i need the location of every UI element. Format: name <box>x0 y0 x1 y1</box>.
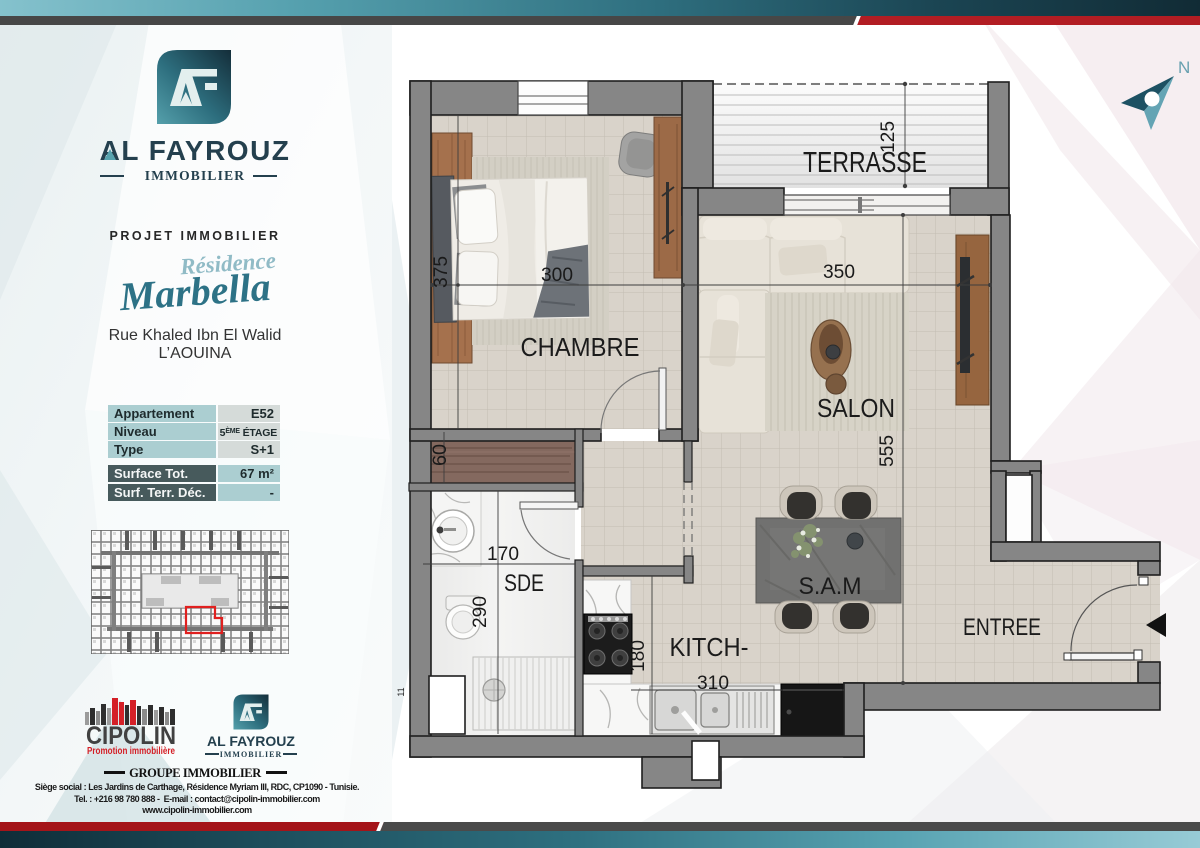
svg-text:N: N <box>1178 58 1190 77</box>
svg-text:S.A.M: S.A.M <box>799 573 862 600</box>
svg-text:350: 350 <box>823 262 855 283</box>
svg-text:310: 310 <box>697 673 729 694</box>
svg-text:CHAMBRE: CHAMBRE <box>521 332 640 362</box>
svg-text:SALON: SALON <box>817 393 895 423</box>
svg-text:180: 180 <box>628 640 649 672</box>
svg-text:300: 300 <box>541 265 573 286</box>
svg-text:TERRASSE: TERRASSE <box>803 147 927 179</box>
svg-text:170: 170 <box>487 544 519 565</box>
svg-text:KITCH-: KITCH- <box>670 632 749 662</box>
svg-text:375: 375 <box>431 256 452 288</box>
svg-text:11: 11 <box>396 687 406 696</box>
svg-text:60: 60 <box>430 444 451 466</box>
svg-text:ENTREE: ENTREE <box>963 614 1041 641</box>
svg-text:SDE: SDE <box>504 570 544 597</box>
svg-text:290: 290 <box>470 596 491 628</box>
svg-text:555: 555 <box>877 435 898 467</box>
